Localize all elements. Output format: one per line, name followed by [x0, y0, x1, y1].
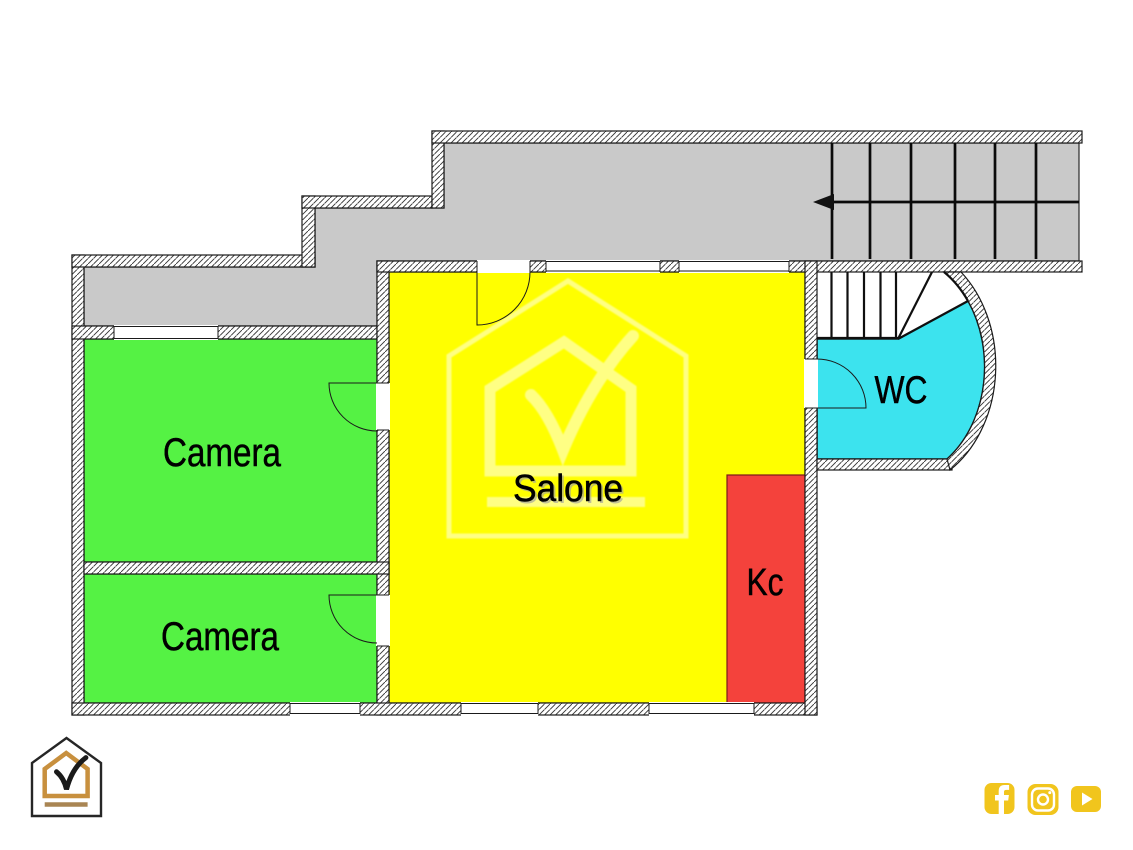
svg-text:Camera: Camera: [163, 431, 282, 475]
svg-text:Camera: Camera: [161, 615, 280, 659]
svg-text:Kc: Kc: [747, 562, 784, 604]
svg-text:WC: WC: [875, 369, 928, 412]
svg-text:Salone: Salone: [513, 468, 623, 510]
